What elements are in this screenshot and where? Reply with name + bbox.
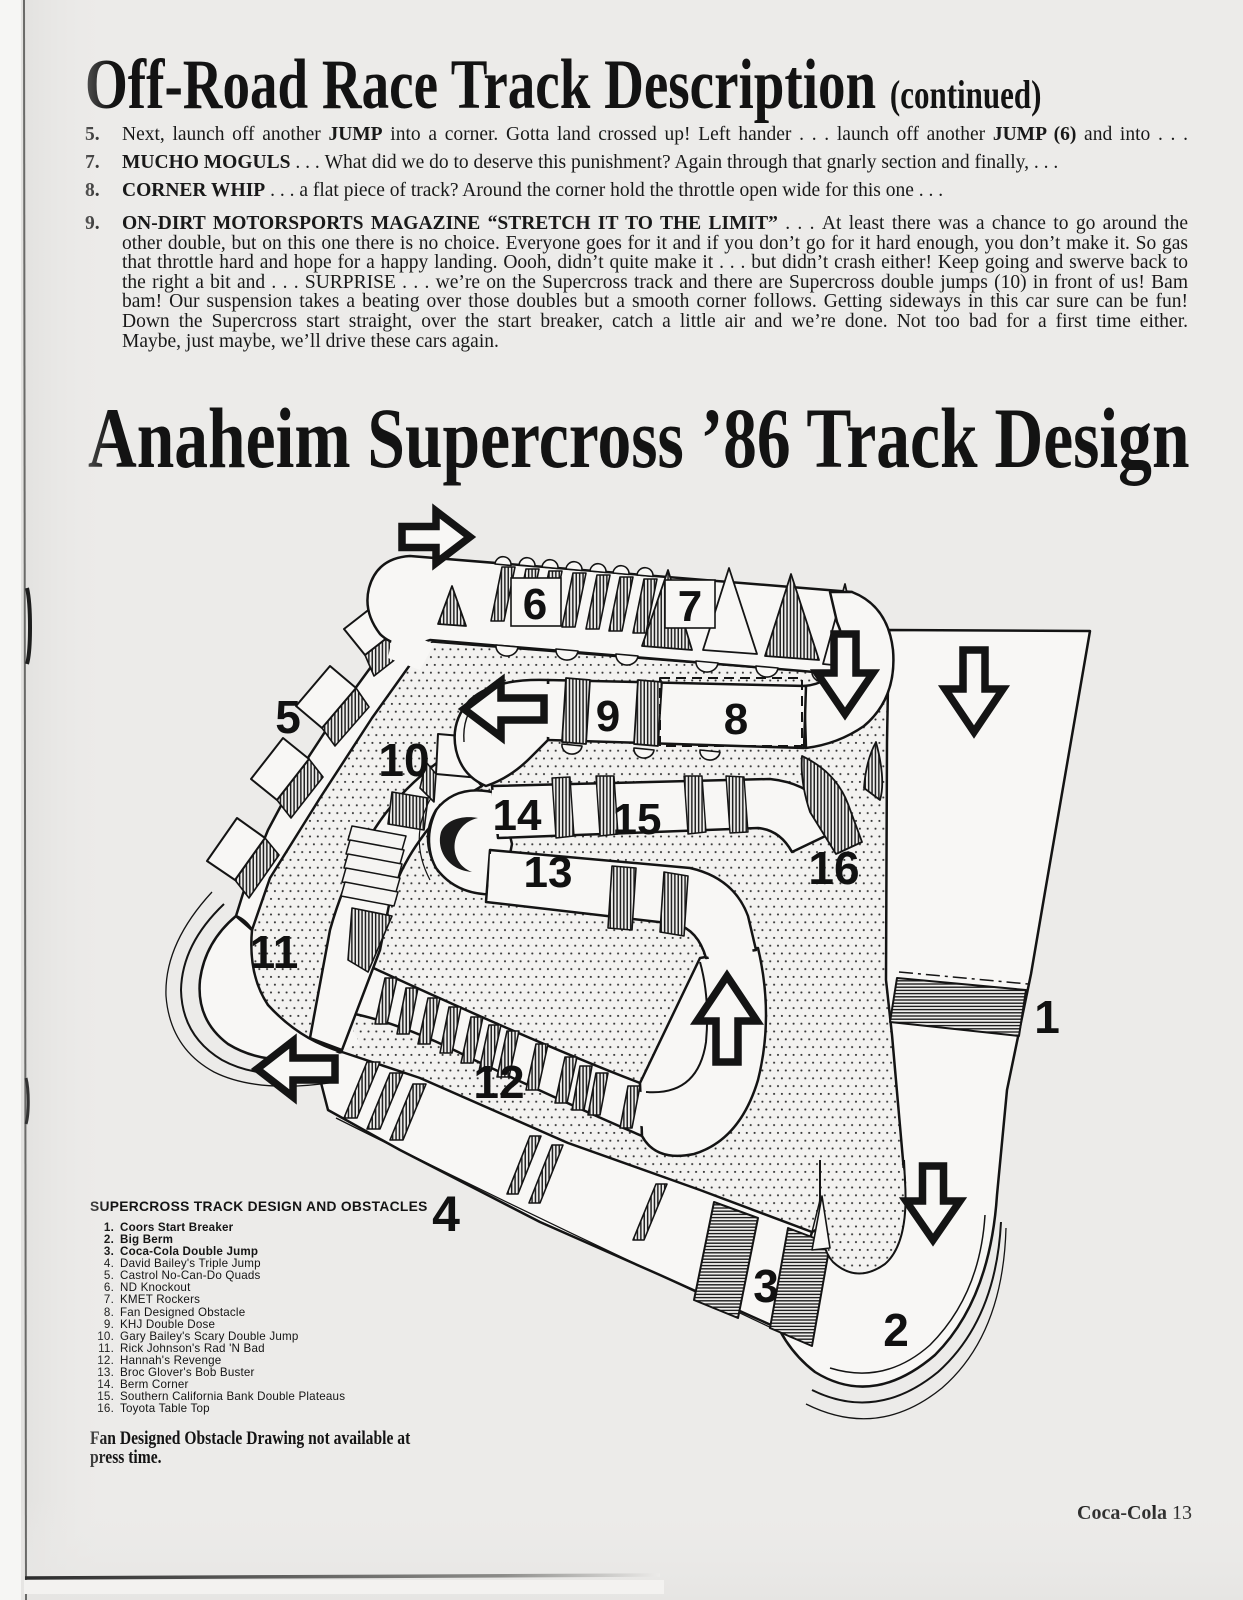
svg-text:3: 3 (753, 1260, 779, 1312)
svg-text:1: 1 (1034, 991, 1060, 1043)
svg-text:14: 14 (493, 791, 542, 840)
svg-text:8: 8 (724, 695, 748, 744)
svg-text:6: 6 (523, 580, 547, 629)
svg-text:11: 11 (250, 926, 299, 978)
svg-text:12: 12 (473, 1056, 524, 1108)
svg-text:16: 16 (808, 842, 859, 894)
svg-text:9: 9 (596, 692, 620, 741)
svg-text:4: 4 (432, 1186, 460, 1242)
svg-text:15: 15 (613, 795, 662, 844)
svg-text:5: 5 (275, 691, 301, 743)
svg-text:2: 2 (883, 1304, 909, 1356)
svg-text:13: 13 (524, 848, 573, 897)
svg-text:10: 10 (378, 734, 429, 786)
svg-text:7: 7 (678, 582, 702, 631)
